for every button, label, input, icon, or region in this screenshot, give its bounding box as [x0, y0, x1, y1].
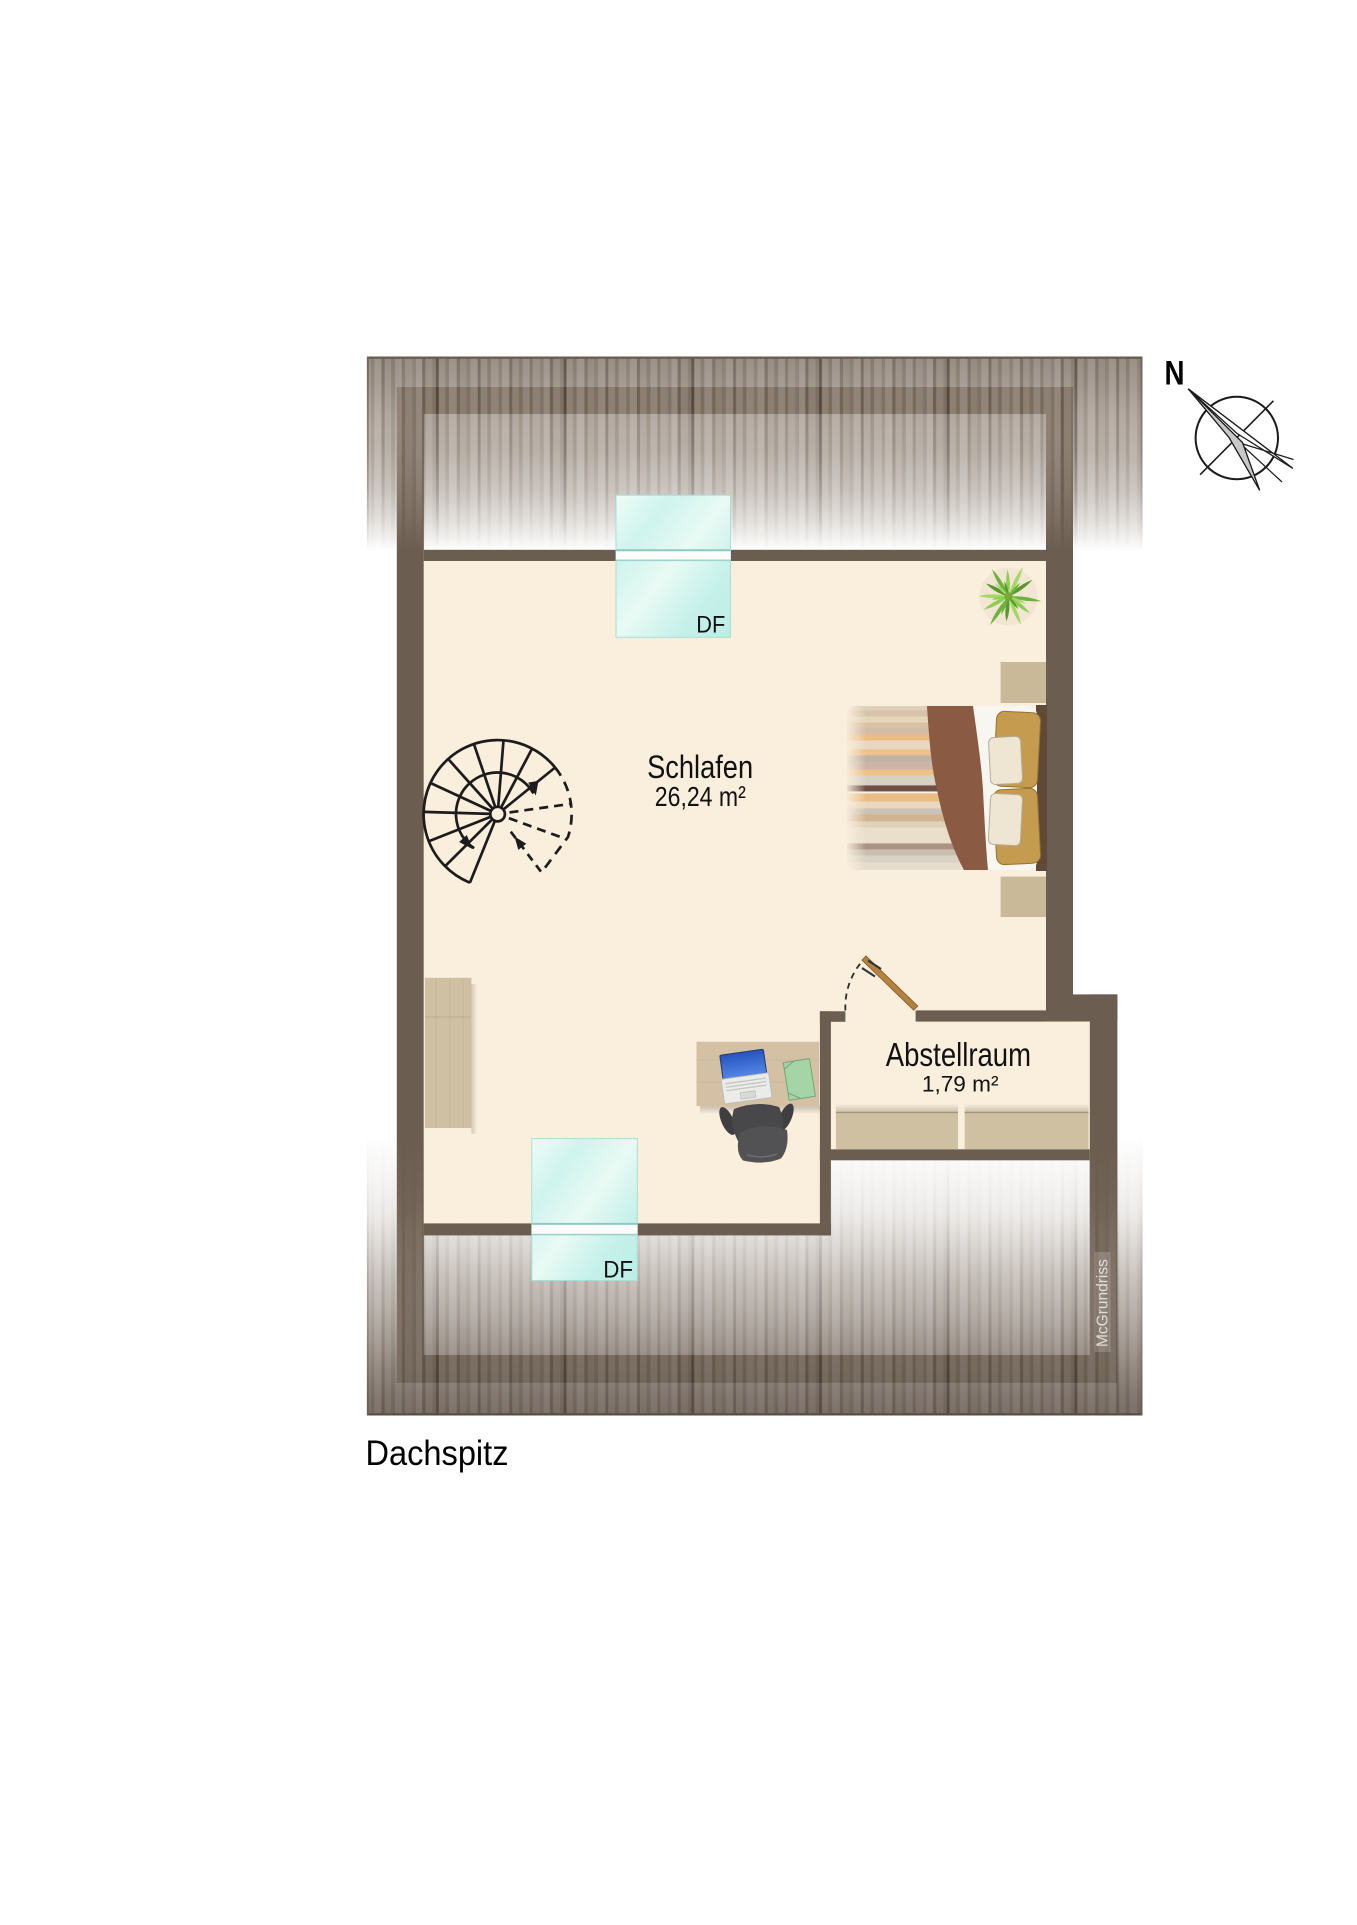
svg-text:DF: DF: [603, 1256, 633, 1283]
svg-text:McGrundriss: McGrundriss: [1095, 1259, 1112, 1347]
svg-text:DF: DF: [696, 612, 725, 639]
svg-text:1,79 m²: 1,79 m²: [922, 1071, 999, 1096]
svg-text:Schlafen: Schlafen: [647, 749, 753, 785]
svg-text:Abstellraum: Abstellraum: [886, 1036, 1031, 1073]
svg-text:26,24 m²: 26,24 m²: [655, 781, 746, 812]
svg-text:N: N: [1165, 355, 1185, 393]
svg-text:Dachspitz: Dachspitz: [366, 1434, 509, 1473]
